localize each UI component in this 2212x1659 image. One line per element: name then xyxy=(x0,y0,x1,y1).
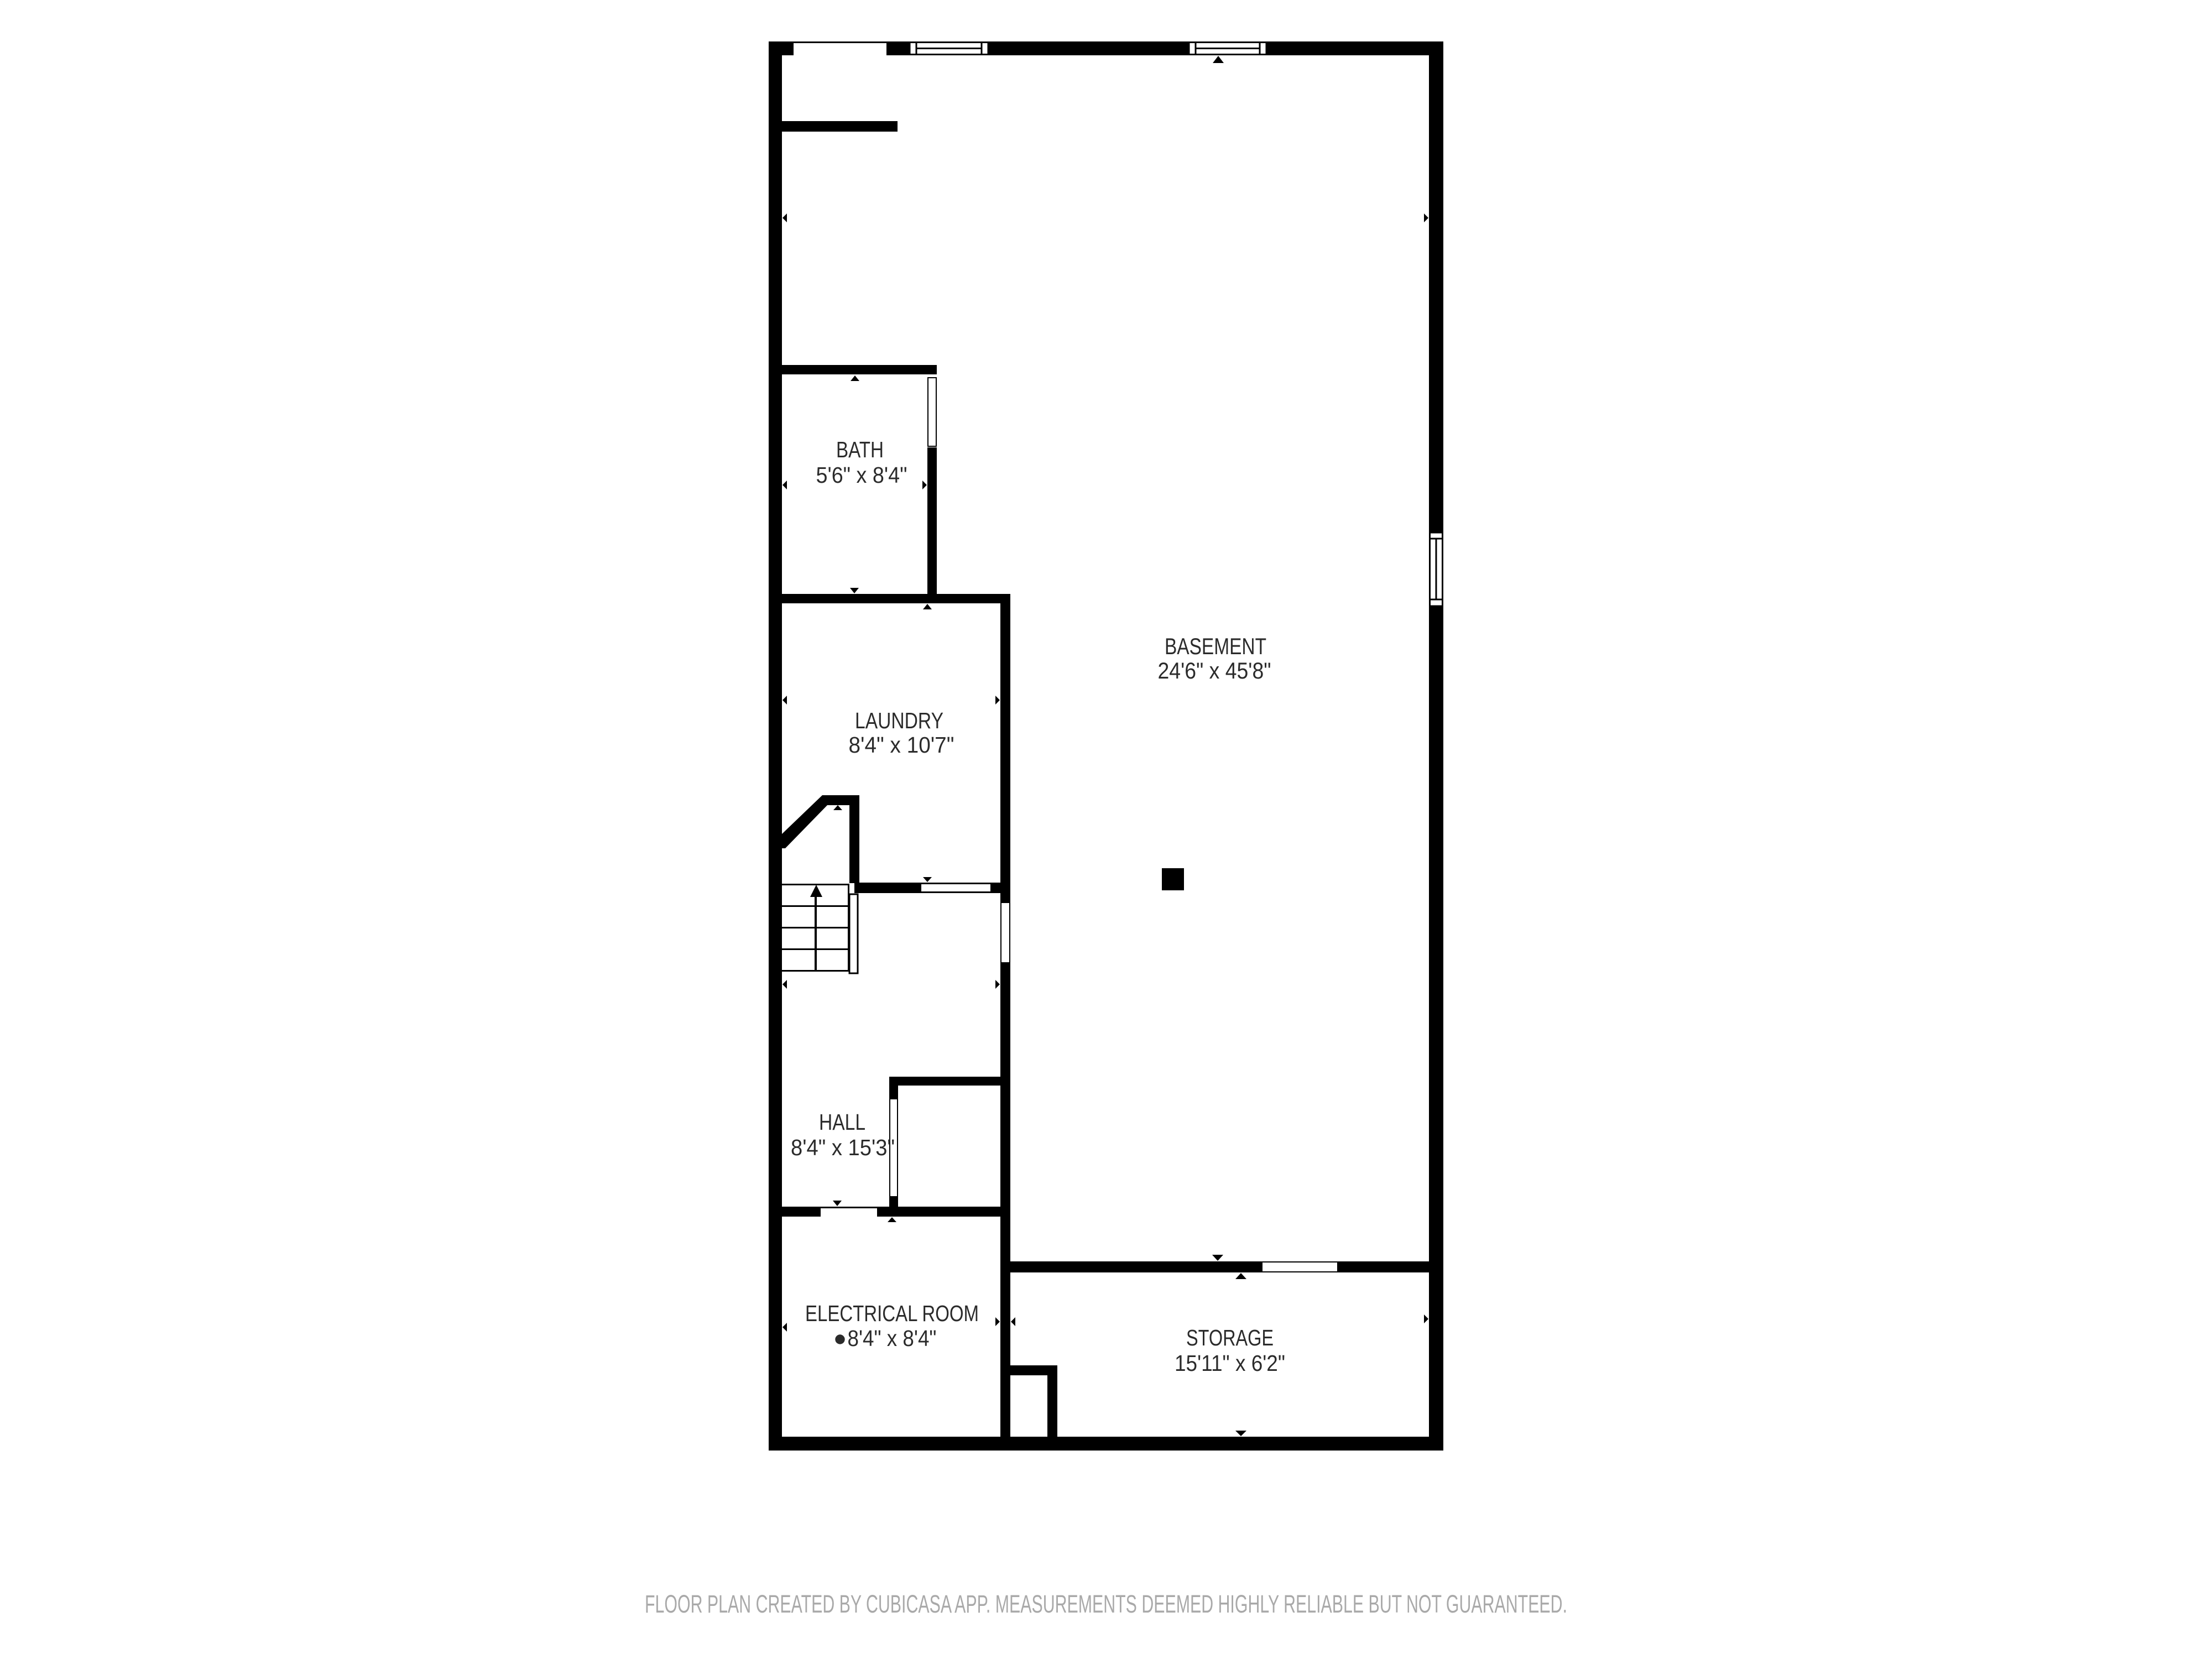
svg-text:ELECTRICAL ROOM: ELECTRICAL ROOM xyxy=(805,1301,979,1326)
svg-text:5'6" x 8'4": 5'6" x 8'4" xyxy=(816,462,907,488)
svg-text:8'4" x 15'3": 8'4" x 15'3" xyxy=(791,1135,895,1160)
svg-text:BATH: BATH xyxy=(836,437,884,462)
svg-text:HALL: HALL xyxy=(819,1109,865,1135)
svg-text:15'11" x 6'2": 15'11" x 6'2" xyxy=(1175,1350,1285,1376)
svg-text:8'4" x 8'4": 8'4" x 8'4" xyxy=(848,1326,937,1351)
svg-text:FLOOR PLAN CREATED BY CUBICASA: FLOOR PLAN CREATED BY CUBICASA APP. MEAS… xyxy=(645,1590,1567,1618)
svg-text:LAUNDRY: LAUNDRY xyxy=(855,708,943,733)
svg-text:8'4" x 10'7": 8'4" x 10'7" xyxy=(849,732,954,758)
svg-text:STORAGE: STORAGE xyxy=(1186,1325,1274,1350)
svg-text:BASEMENT: BASEMENT xyxy=(1165,633,1266,659)
svg-text:24'6" x 45'8": 24'6" x 45'8" xyxy=(1158,658,1271,684)
